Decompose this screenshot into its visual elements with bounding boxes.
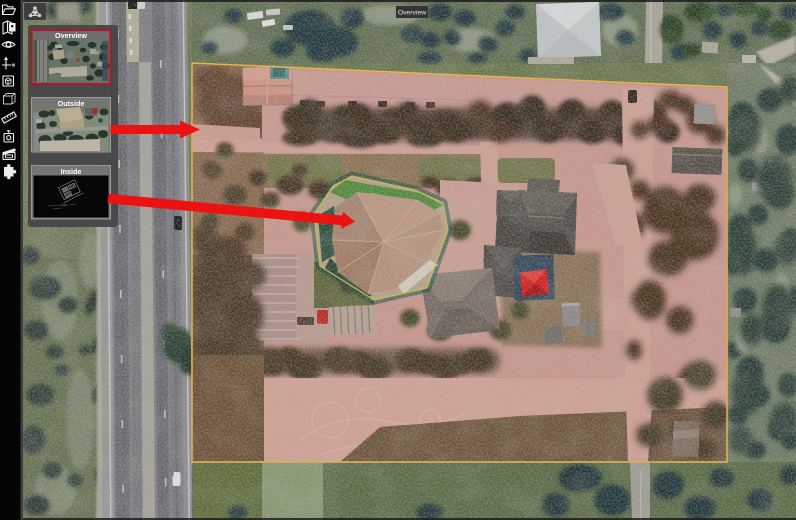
svg-text:Overview: Overview bbox=[55, 31, 87, 40]
svg-text:Inside: Inside bbox=[61, 167, 82, 176]
svg-text:Overview: Overview bbox=[398, 9, 426, 16]
svg-text:Outside: Outside bbox=[58, 99, 85, 108]
